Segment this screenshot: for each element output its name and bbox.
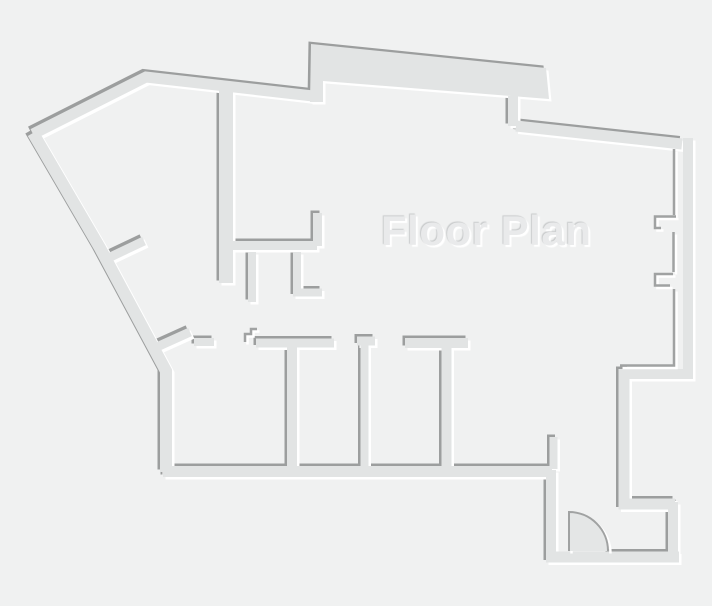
entry-tall-edge-light <box>627 372 678 507</box>
right-inner-face-low <box>620 289 674 366</box>
outer-left <box>33 133 166 472</box>
wall-layer <box>33 44 688 562</box>
floor-plan-canvas: Floor Plan <box>0 0 712 606</box>
top-bump-slab <box>310 44 549 102</box>
thin-line-layer <box>245 149 676 366</box>
right-slab-edge-light <box>623 141 691 377</box>
right-inner-face-low-shadow <box>623 292 677 369</box>
right-slab <box>620 138 688 374</box>
floor-plan-svg <box>0 0 712 606</box>
outer-left-edge-light <box>36 136 169 475</box>
diag-stub-lower <box>159 332 190 346</box>
floor-plan-title: Floor Plan <box>381 207 591 255</box>
outer-left-edge-dark <box>31 131 164 470</box>
